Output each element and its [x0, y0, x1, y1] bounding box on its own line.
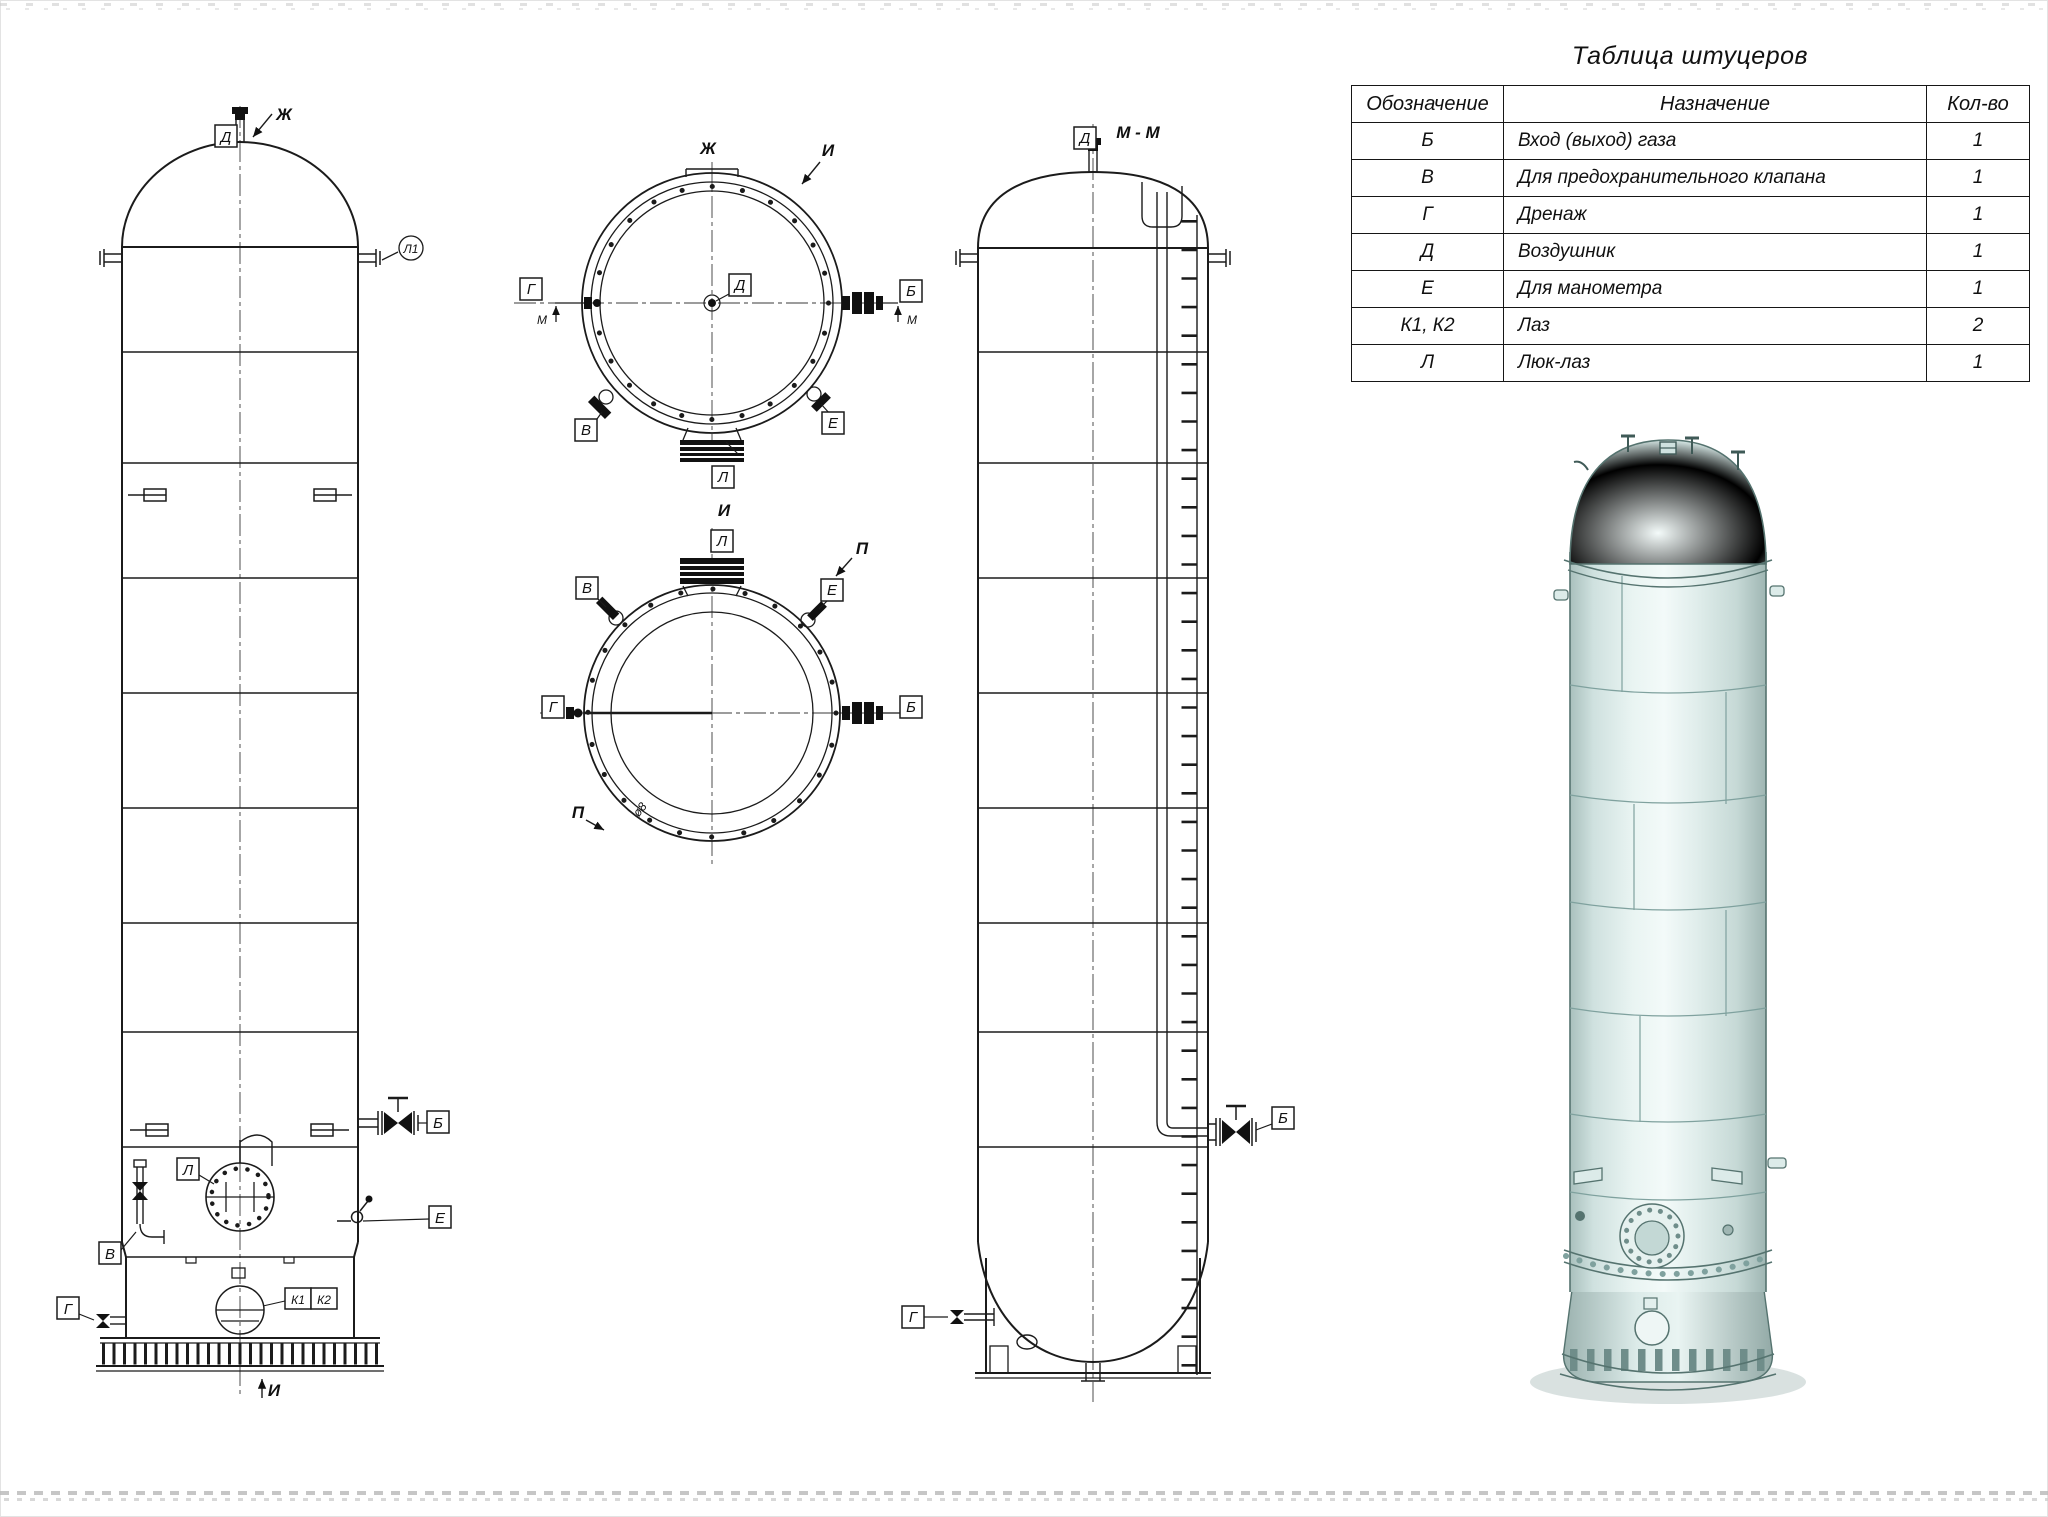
- table-header-row: Обозначение Назначение Кол-во: [1352, 86, 2030, 123]
- left-trunnion: [100, 249, 122, 267]
- gas-valve-B: [358, 1098, 427, 1135]
- drain-G: [924, 1308, 994, 1326]
- label-zh: Ж: [275, 105, 293, 124]
- view-title: М - М: [1116, 123, 1160, 142]
- fitting-g: [566, 707, 583, 719]
- cell-qty: 1: [1927, 123, 2030, 160]
- cell-purpose: Лаз: [1504, 308, 1927, 345]
- cell-purpose: Воздушник: [1504, 234, 1927, 271]
- balloon-text: Л1: [403, 242, 419, 256]
- fitting-v: [588, 390, 613, 419]
- render-manhole: [1620, 1204, 1684, 1268]
- small-fitting: [1723, 1225, 1733, 1235]
- table-row: Е Для манометра 1: [1352, 271, 2030, 308]
- cell-qty: 1: [1927, 234, 2030, 271]
- view-zh-arrow: [253, 114, 272, 137]
- label-d: Д: [219, 129, 232, 146]
- cell-qty: 1: [1927, 345, 2030, 382]
- manometer-fitting-E: [337, 1196, 429, 1223]
- small-fitting: [1575, 1211, 1585, 1221]
- cell-purpose: Люк-лаз: [1504, 345, 1927, 382]
- gas-valve-B: [1208, 1106, 1272, 1146]
- table-row: Л Люк-лаз 1: [1352, 345, 2030, 382]
- manhole-L: [206, 1135, 274, 1231]
- header-mark: Обозначение: [1352, 86, 1504, 123]
- label-e: Е: [435, 1210, 446, 1227]
- cell-mark: К1, К2: [1352, 308, 1504, 345]
- skirt-plate: [232, 1268, 245, 1278]
- table-title: Таблица штуцеров: [1351, 42, 2029, 71]
- ladder: [1189, 215, 1197, 1375]
- label-dim: ø8: [630, 799, 650, 819]
- header-purpose: Назначение: [1504, 86, 1927, 123]
- label-b: Б: [433, 1115, 443, 1132]
- vessel-body: [1554, 550, 1786, 1292]
- label-k1: К1: [291, 1293, 305, 1307]
- vessel-3d-render: [1530, 430, 1810, 1420]
- view-p-arrow-bottom: [586, 820, 604, 830]
- right-trunnion: [358, 249, 380, 267]
- table-row: В Для предохранительного клапана 1: [1352, 160, 2030, 197]
- table-row: Д Воздушник 1: [1352, 234, 2030, 271]
- label-k2: К2: [317, 1293, 331, 1307]
- skirt-opening: [1635, 1311, 1669, 1345]
- cell-purpose: Для манометра: [1504, 271, 1927, 308]
- side-view-drawing: М - М Д Б Г: [660, 80, 1330, 1420]
- label-i-marker: И: [268, 1381, 281, 1400]
- cell-qty: 1: [1927, 271, 2030, 308]
- vessel-dome: [1564, 436, 1772, 587]
- cell-mark: Д: [1352, 234, 1504, 271]
- label-v: В: [105, 1246, 115, 1263]
- cell-purpose: Дренаж: [1504, 197, 1927, 234]
- safety-valve-line-V: [121, 1160, 164, 1250]
- nozzle-table-block: Таблица штуцеров Обозначение Назначение …: [1351, 42, 2029, 382]
- label-l: Л: [182, 1162, 194, 1179]
- cell-mark: Г: [1352, 197, 1504, 234]
- cell-mark: Л: [1352, 345, 1504, 382]
- cell-purpose: Для предохранительного клапана: [1504, 160, 1927, 197]
- drain-G: [79, 1314, 126, 1328]
- label-b: Б: [1278, 1110, 1288, 1127]
- label-d: Д: [1078, 130, 1091, 147]
- table-row: Б Вход (выход) газа 1: [1352, 123, 2030, 160]
- label-v: В: [581, 422, 591, 439]
- left-trunnion: [956, 249, 978, 267]
- header-qty: Кол-во: [1927, 86, 2030, 123]
- table-row: Г Дренаж 1: [1352, 197, 2030, 234]
- label-m-left: М: [537, 313, 547, 327]
- lifting-lug: [130, 1124, 349, 1136]
- cell-qty: 1: [1927, 160, 2030, 197]
- cell-mark: Е: [1352, 271, 1504, 308]
- fitting-v: [596, 597, 623, 625]
- label-p-bottom: П: [572, 803, 585, 822]
- support-skirt: [1560, 1290, 1776, 1390]
- fitting-g: [555, 297, 601, 309]
- front-view-drawing: Д Ж Л1 Б Л Е В Г К1 К2 И: [40, 80, 480, 1420]
- nozzle-table: Обозначение Назначение Кол-во Б Вход (вы…: [1351, 85, 2030, 382]
- skirt-access-opening: [216, 1286, 285, 1334]
- label-v: В: [582, 580, 592, 597]
- base-ring: [96, 1338, 384, 1371]
- cell-mark: В: [1352, 160, 1504, 197]
- cell-qty: 2: [1927, 308, 2030, 345]
- table-row: К1, К2 Лаз 2: [1352, 308, 2030, 345]
- cell-qty: 1: [1927, 197, 2030, 234]
- cell-mark: Б: [1352, 123, 1504, 160]
- cell-purpose: Вход (выход) газа: [1504, 123, 1927, 160]
- skirt-plate: [1644, 1298, 1657, 1309]
- right-trunnion: [1208, 249, 1230, 267]
